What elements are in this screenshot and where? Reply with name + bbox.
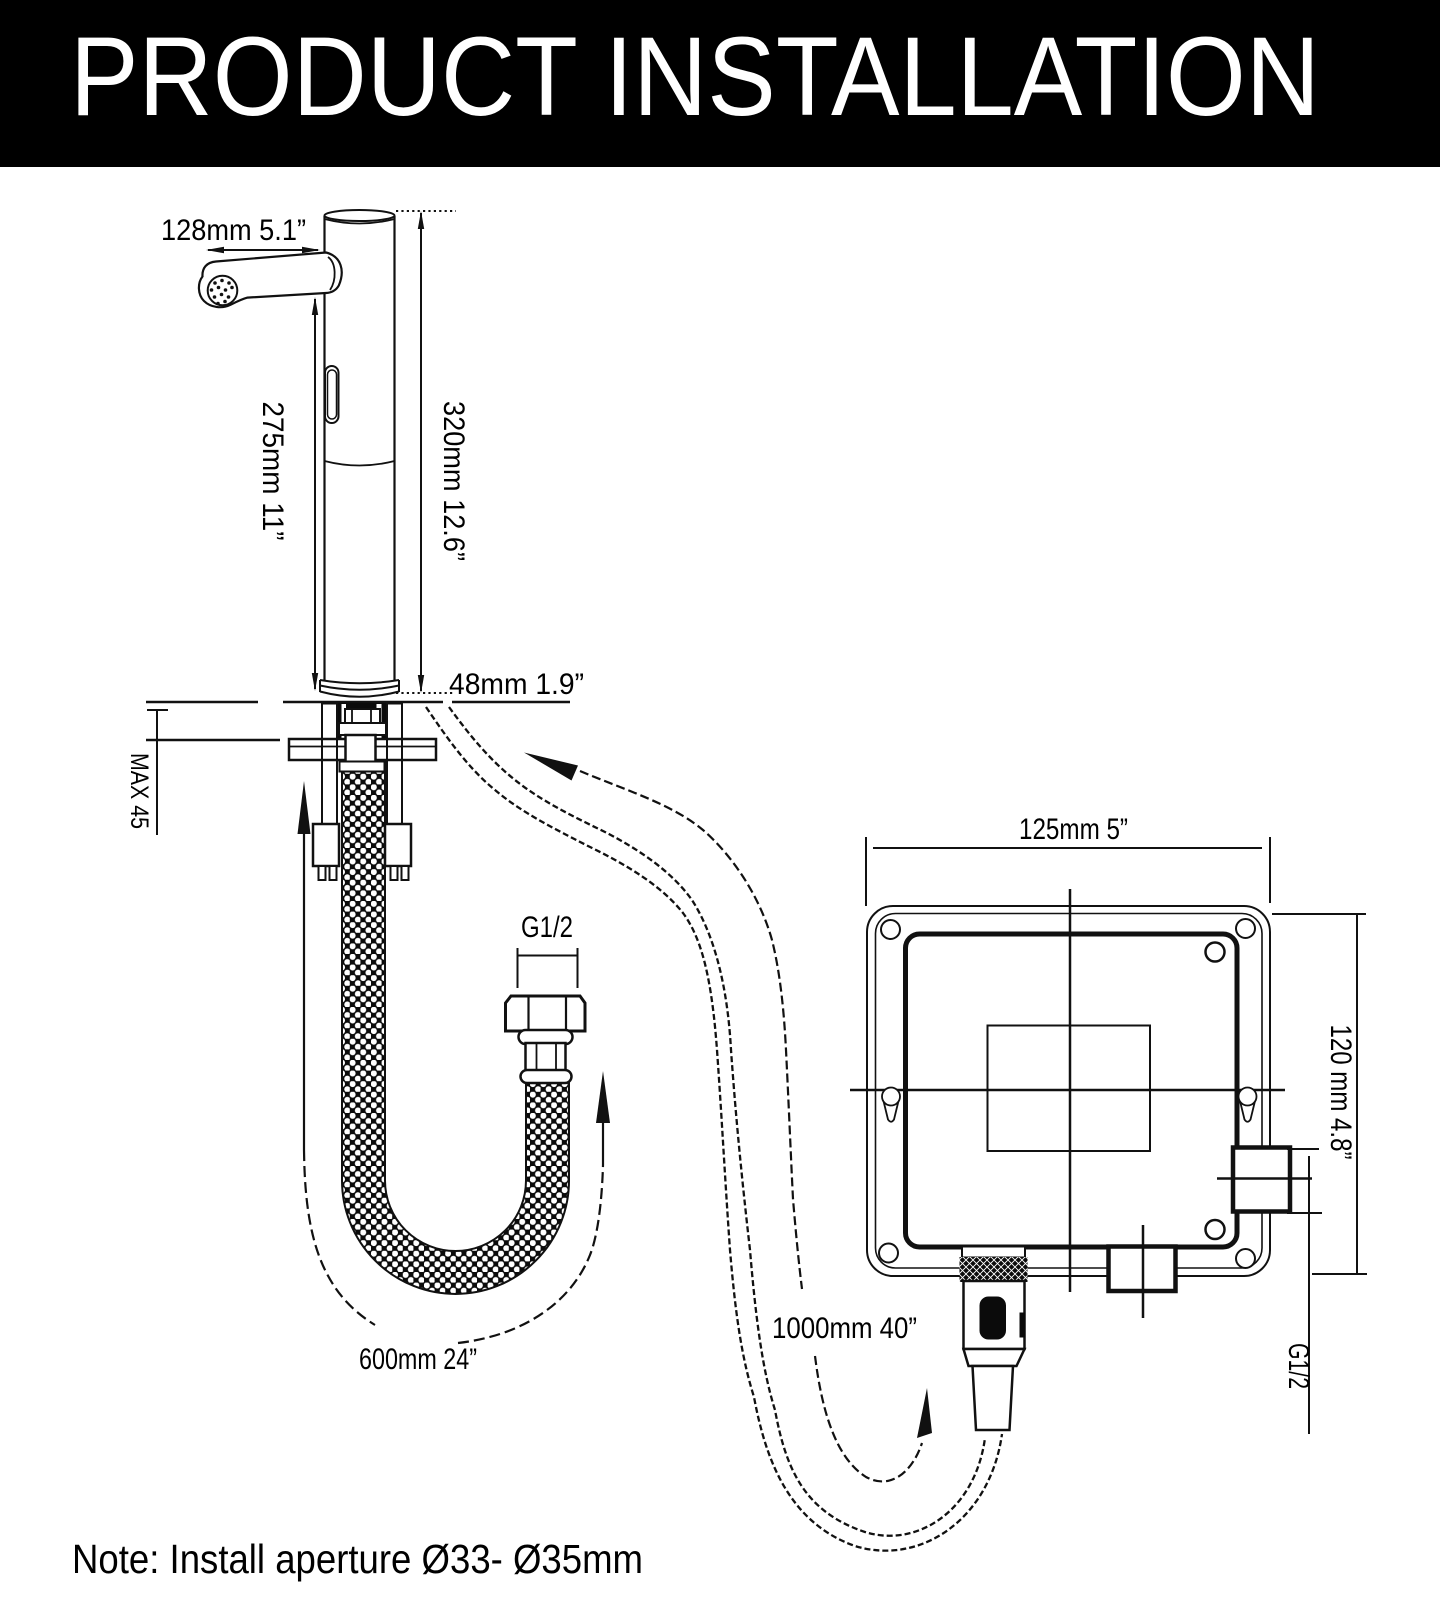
svg-text:125mm 5”: 125mm 5” — [1019, 813, 1128, 846]
svg-text:600mm 24”: 600mm 24” — [359, 1343, 477, 1376]
svg-text:128mm 5.1”: 128mm 5.1” — [161, 214, 306, 247]
svg-text:1000mm 40”: 1000mm 40” — [772, 1312, 917, 1345]
svg-text:G1/2: G1/2 — [521, 911, 573, 944]
svg-text:Note: Install aperture Ø33- Ø3: Note: Install aperture Ø33- Ø35mm — [72, 1536, 643, 1582]
svg-text:275mm 11”: 275mm 11” — [256, 402, 289, 541]
svg-text:48mm 1.9”: 48mm 1.9” — [449, 668, 584, 701]
svg-text:320mm 12.6”: 320mm 12.6” — [437, 401, 470, 561]
svg-text:MAX 45: MAX 45 — [125, 753, 153, 829]
svg-text:PRODUCT INSTALLATION: PRODUCT INSTALLATION — [70, 14, 1320, 139]
svg-text:120 mm 4.8”: 120 mm 4.8” — [1324, 1025, 1357, 1160]
svg-text:G1/2: G1/2 — [1282, 1343, 1314, 1389]
